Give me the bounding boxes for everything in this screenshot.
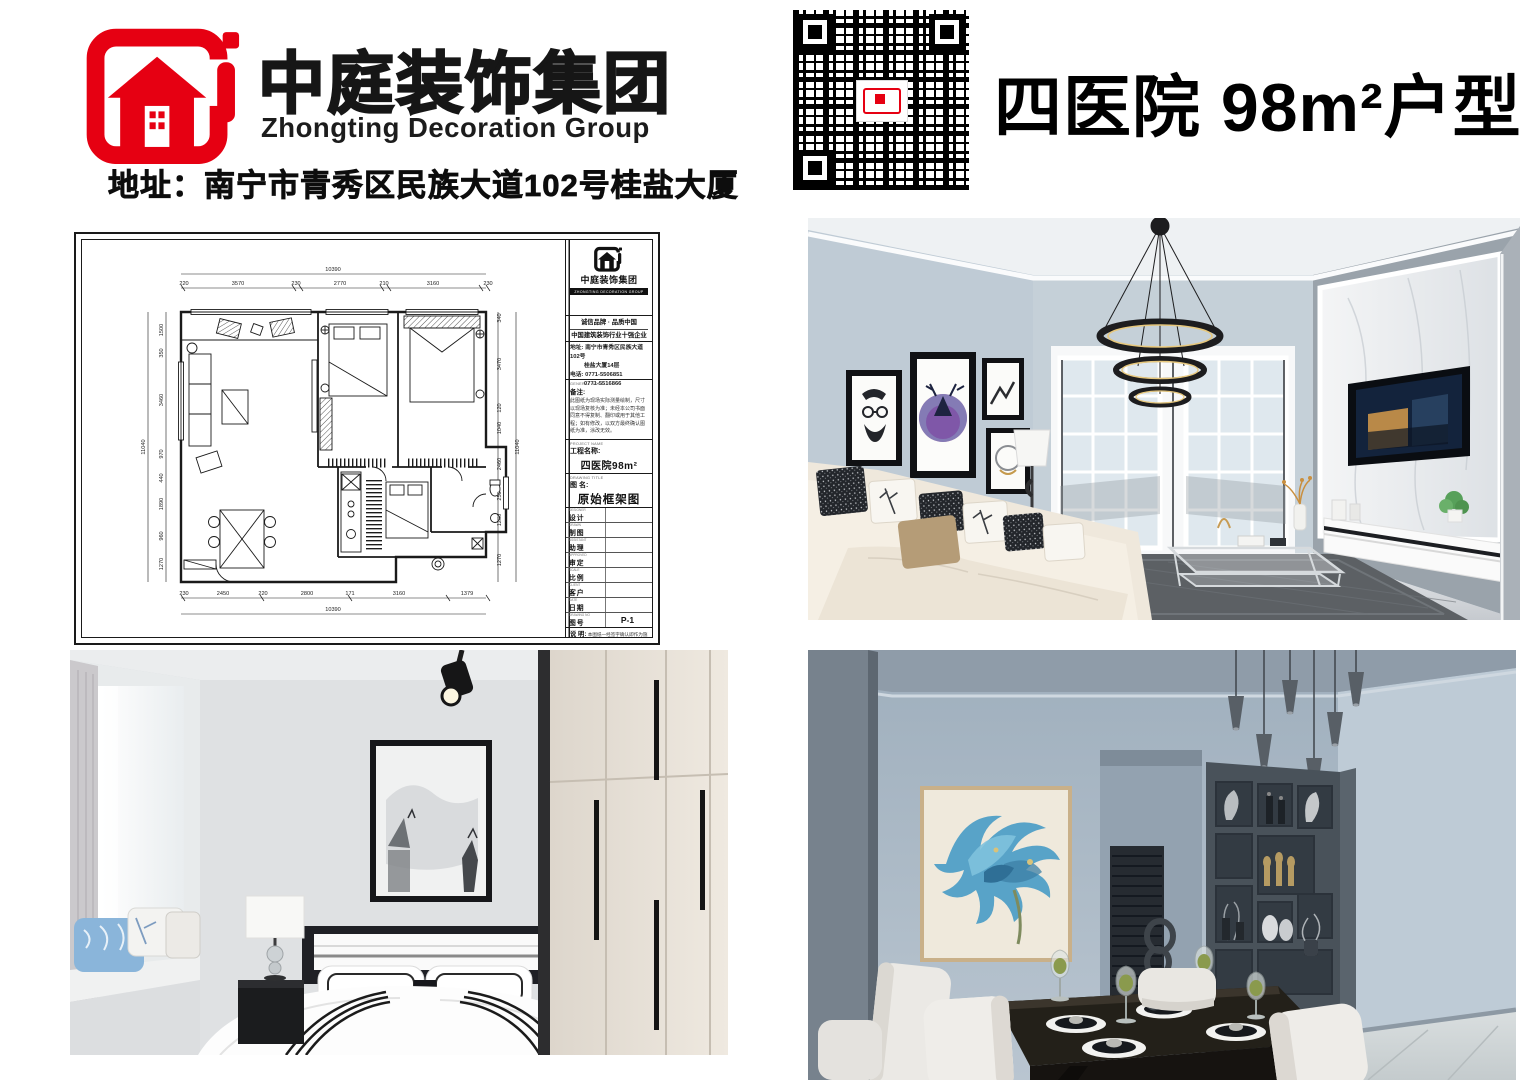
- tb-address-line1: 地址: 南宁市青秀区民族大道102号: [570, 344, 648, 362]
- living-room-photo: [808, 218, 1520, 620]
- svg-text:1270: 1270: [497, 554, 503, 566]
- brand-name-en: Zhongting Decoration Group: [261, 112, 650, 144]
- bay-window: [70, 660, 200, 1055]
- svg-text:10390: 10390: [325, 267, 341, 273]
- field-assistant: ASSISTANT助理: [566, 538, 652, 553]
- field-drawn: DRAWN制图: [566, 523, 652, 538]
- floor-plan-sheet: 10390 220 3570 230 2770 210 3160 230 230…: [74, 232, 660, 645]
- field-scale: SCALE比例: [566, 568, 652, 583]
- qr-center-logo: [856, 80, 908, 122]
- svg-text:2450: 2450: [217, 591, 229, 597]
- svg-text:2770: 2770: [334, 281, 346, 287]
- wall-art: [370, 740, 492, 902]
- company-address: 地址：南宁市青秀区民族大道102号桂盐大厦: [108, 160, 739, 205]
- svg-text:220: 220: [179, 281, 188, 287]
- bedroom-photo: [70, 650, 728, 1055]
- plan-bedroom1-furniture: [320, 324, 387, 450]
- svg-text:3460: 3460: [159, 394, 165, 406]
- svg-text:1040: 1040: [497, 422, 503, 434]
- svg-text:230: 230: [179, 591, 188, 597]
- project-label: 工程名称:: [570, 446, 648, 456]
- svg-text:1379: 1379: [461, 591, 473, 597]
- svg-text:210: 210: [379, 281, 388, 287]
- svg-text:171: 171: [345, 591, 354, 597]
- qr-finder-icon: [797, 150, 833, 186]
- qr-finder-icon: [797, 14, 833, 50]
- svg-text:3160: 3160: [393, 591, 405, 597]
- note-label: 说 明:: [570, 631, 586, 637]
- svg-text:220: 220: [258, 591, 267, 597]
- svg-text:1280: 1280: [497, 514, 503, 526]
- flower-painting: [920, 786, 1072, 962]
- floor-plan-border: 10390 220 3570 230 2770 210 3160 230 230…: [81, 239, 653, 638]
- drawing-label: 图 名:: [570, 480, 648, 490]
- svg-text:10390: 10390: [325, 607, 341, 613]
- plan-bedroom2-furniture: [404, 316, 484, 402]
- title-block-logo: 中庭装饰集团 ZHONGTING DECORATION GROUP: [566, 240, 652, 316]
- title-block-fields: DESIGNER设计 DRAWN制图 ASSISTANT助理 APPROVED审…: [566, 508, 652, 628]
- svg-text:350: 350: [159, 348, 165, 357]
- remark-label: 备注:: [570, 388, 648, 398]
- svg-text:1890: 1890: [159, 498, 165, 510]
- right-wall-edge: [1500, 226, 1520, 620]
- svg-text:960: 960: [159, 531, 165, 540]
- tb-phone-line1: 电话: 0771-5506851: [570, 371, 648, 380]
- qr-finder-icon: [929, 14, 965, 50]
- field-designer: DESIGNER设计: [566, 508, 652, 523]
- drawing-value: 原始框架图: [570, 491, 648, 507]
- wardrobe: [538, 650, 728, 1055]
- svg-text:1500: 1500: [159, 324, 165, 336]
- svg-text:970: 970: [159, 449, 165, 458]
- floor-plan-drawing: 10390 220 3570 230 2770 210 3160 230 230…: [86, 242, 572, 638]
- page-title: 四医院 98m²户型: [994, 52, 1522, 151]
- remark-text: 此图纸为现场实际测量绘制，尺寸以现场复核为准；未经本公司书面同意不得复制、翻印或…: [570, 398, 648, 436]
- title-block-brand-en: ZHONGTING DECORATION GROUP: [570, 288, 648, 295]
- plan-kitchen-fixtures: [341, 472, 374, 552]
- field-client: CLIENT客户: [566, 583, 652, 598]
- company-logo-icon: [86, 26, 250, 164]
- svg-text:120: 120: [497, 403, 503, 412]
- plan-dining-furniture: [184, 510, 276, 569]
- svg-text:250: 250: [497, 491, 503, 500]
- svg-text:230: 230: [291, 281, 300, 287]
- svg-text:3570: 3570: [232, 281, 244, 287]
- project-value: 四医院98m²: [570, 457, 648, 472]
- title-block: 中庭装饰集团 ZHONGTING DECORATION GROUP 诚信品牌 ·…: [565, 240, 652, 637]
- svg-text:11040: 11040: [141, 439, 147, 454]
- tv-wall: [1320, 254, 1500, 540]
- company-logo-small-icon: [594, 246, 624, 272]
- tb-address-line2: 桂盐大厦14层: [570, 362, 648, 371]
- slogan-line1: 诚信品牌 · 品质中国: [570, 318, 648, 329]
- qr-code: [793, 10, 969, 190]
- svg-text:2460: 2460: [497, 458, 503, 470]
- svg-text:230: 230: [483, 281, 492, 287]
- svg-text:340: 340: [497, 313, 503, 322]
- svg-text:11040: 11040: [515, 439, 521, 454]
- field-date: DATE日期: [566, 598, 652, 613]
- title-block-brand: 中庭装饰集团: [570, 273, 648, 286]
- svg-text:440: 440: [159, 473, 165, 482]
- svg-text:2800: 2800: [301, 591, 313, 597]
- svg-text:1270: 1270: [159, 558, 165, 570]
- svg-text:3470: 3470: [497, 358, 503, 370]
- svg-text:3160: 3160: [427, 281, 439, 287]
- slogan-line2: 中国建筑装饰行业十强企业: [570, 329, 648, 342]
- field-drawing-no: DRAWING NO图号 P-1: [566, 613, 652, 627]
- plan-living-furniture: [187, 343, 317, 473]
- dining-room-photo: [808, 650, 1516, 1080]
- field-approved: APPROVED审定: [566, 553, 652, 568]
